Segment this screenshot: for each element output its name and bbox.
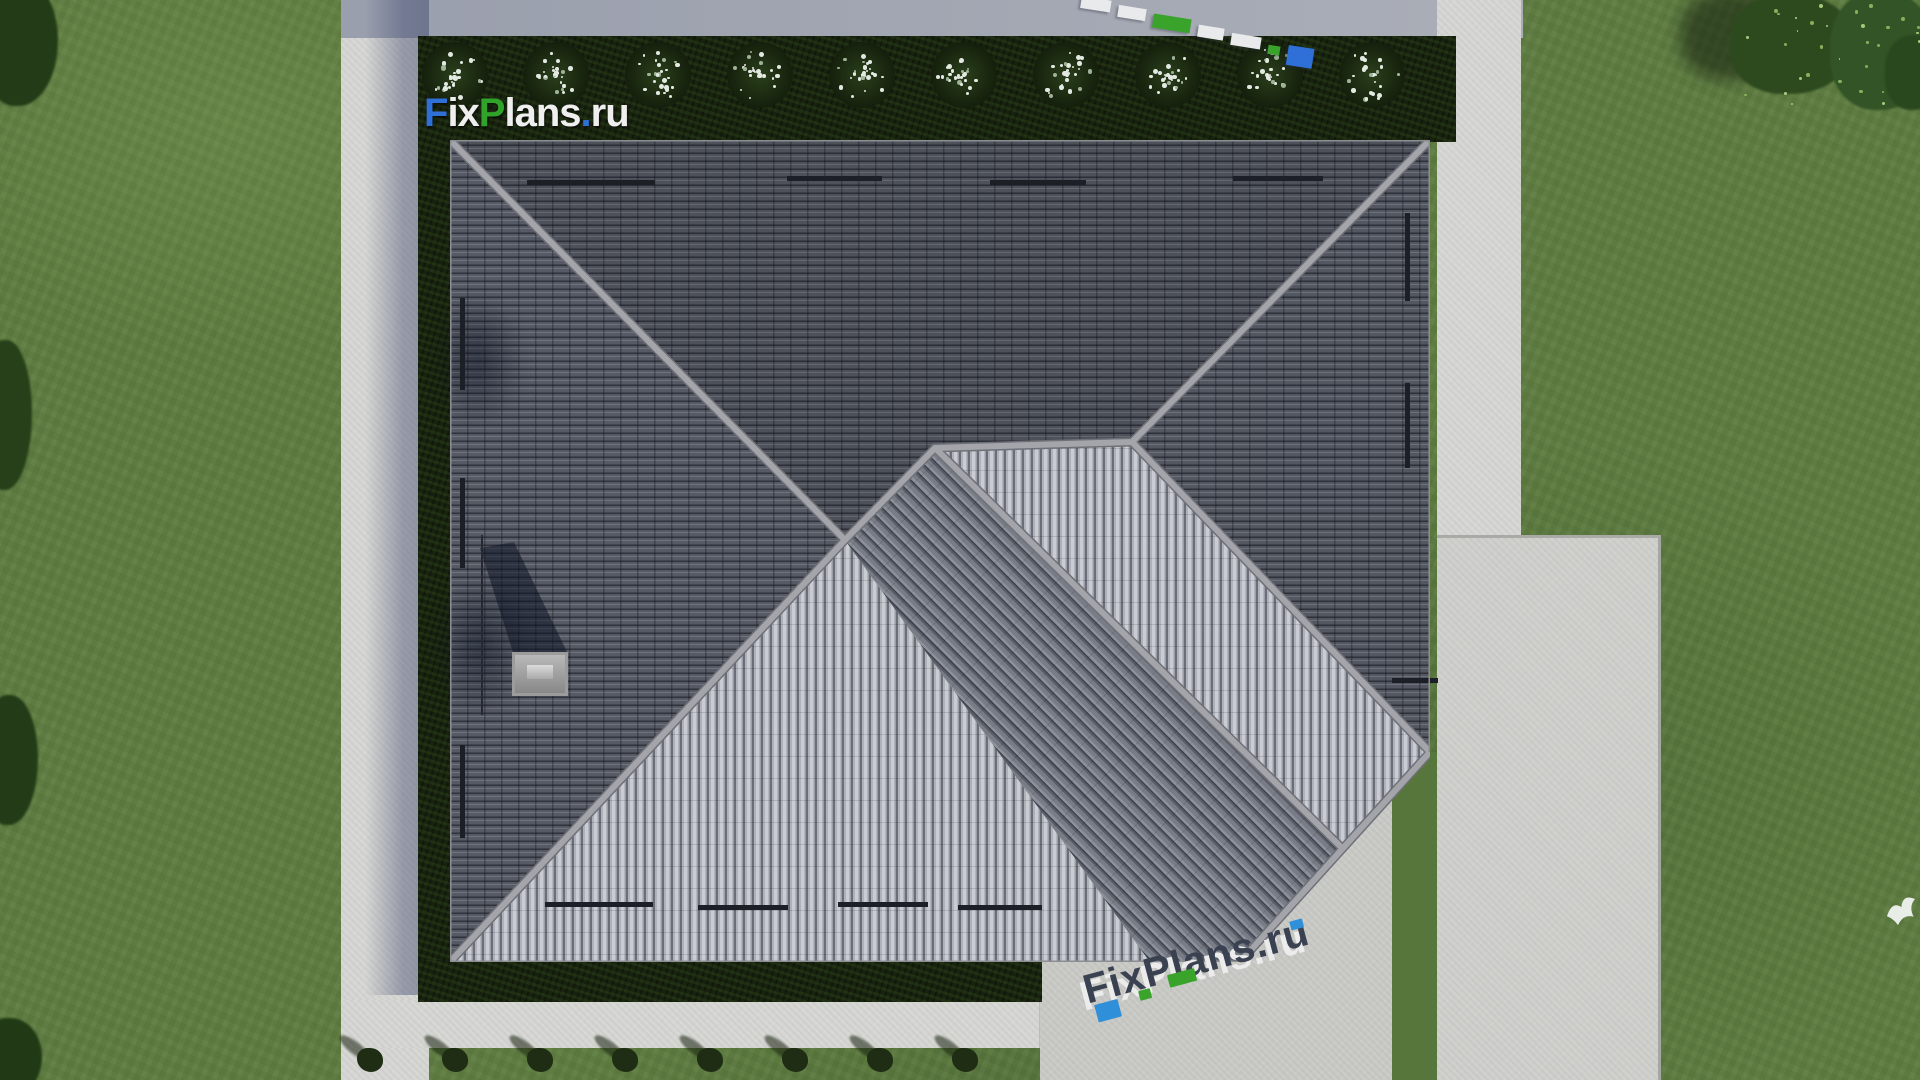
logo-letters-lans: lans: [504, 91, 580, 135]
conifer-tree: [697, 1048, 723, 1072]
hedge-bottom: [418, 960, 1042, 1002]
conifer-tree: [782, 1048, 808, 1072]
tree-left-mid2: [0, 695, 38, 825]
tree-left-mid1: [0, 340, 32, 490]
leaf-highlight: [1869, 4, 1873, 8]
bottom-walkway: [341, 1000, 1041, 1048]
conifer-tree: [442, 1048, 468, 1072]
leaf-highlight: [1784, 92, 1787, 95]
leaf-highlight: [1866, 41, 1869, 44]
aerial-render-scene: FixPlans.ru FixPlans.ru FixPlans.ru: [0, 0, 1920, 1080]
leaf-highlight: [1810, 21, 1814, 25]
watermark-letter-top: [1286, 45, 1315, 69]
driveway: [1437, 535, 1661, 1080]
conifer-tree: [527, 1048, 553, 1072]
leaf-highlight: [1882, 91, 1884, 93]
leaf-highlight: [1799, 77, 1802, 80]
hedge-left: [418, 36, 454, 1000]
leaf-highlight: [1795, 17, 1797, 19]
leaf-highlight: [1865, 65, 1868, 68]
leaf-highlight: [1886, 26, 1889, 29]
leaf-highlight: [1797, 30, 1799, 32]
conifer-tree: [952, 1048, 978, 1072]
roof-ridge-lines: [450, 140, 1430, 962]
leaf-highlight: [1861, 24, 1865, 28]
leaf-highlight: [1838, 80, 1842, 84]
leaf-highlight: [1877, 44, 1880, 47]
tree-left-bottom: [0, 1018, 42, 1080]
top-walkway: [341, 0, 1523, 38]
watermark-letter-top: [1197, 25, 1225, 41]
conifer-tree: [612, 1048, 638, 1072]
logo-letter-p: P: [479, 91, 505, 135]
watermark-letter-top: [1152, 14, 1192, 34]
tree-cluster-topright: [1680, 0, 1920, 150]
leaf-highlight: [1820, 45, 1824, 49]
leaf-highlight: [1859, 90, 1863, 94]
logo-letters-ix: ix: [447, 91, 478, 135]
logo-letters-ru: ru: [591, 91, 629, 135]
leaf-highlight: [1839, 58, 1841, 60]
house-roof: [450, 140, 1430, 962]
leaf-highlight: [1916, 32, 1918, 34]
logo-dot: .: [581, 91, 591, 135]
logo-letter-f: F: [424, 91, 447, 135]
tree-left-top: [0, 0, 58, 106]
watermark-letter-top: [1080, 0, 1112, 13]
tree-highlights: [1680, 0, 1920, 150]
leaf-highlight: [1784, 43, 1787, 46]
leaf-highlight: [1791, 103, 1793, 105]
leaf-highlight: [1806, 73, 1810, 77]
leaf-highlight: [1882, 102, 1885, 105]
leaf-highlight: [1777, 13, 1780, 16]
leaf-highlight: [1746, 36, 1749, 39]
leaf-highlight: [1901, 17, 1905, 21]
leaf-highlight: [1744, 94, 1746, 96]
watermark-letter-top: [1267, 45, 1280, 56]
watermark-letter-top: [1230, 33, 1262, 50]
conifer-tree: [867, 1048, 893, 1072]
leaf-highlight: [1826, 25, 1828, 27]
watermark-letter-top: [1117, 5, 1147, 21]
white-bird: [1880, 889, 1920, 930]
leaf-highlight: [1855, 10, 1859, 14]
fixplans-logo: FixPlans.ru: [424, 91, 629, 135]
leaf-highlight: [1819, 4, 1823, 8]
